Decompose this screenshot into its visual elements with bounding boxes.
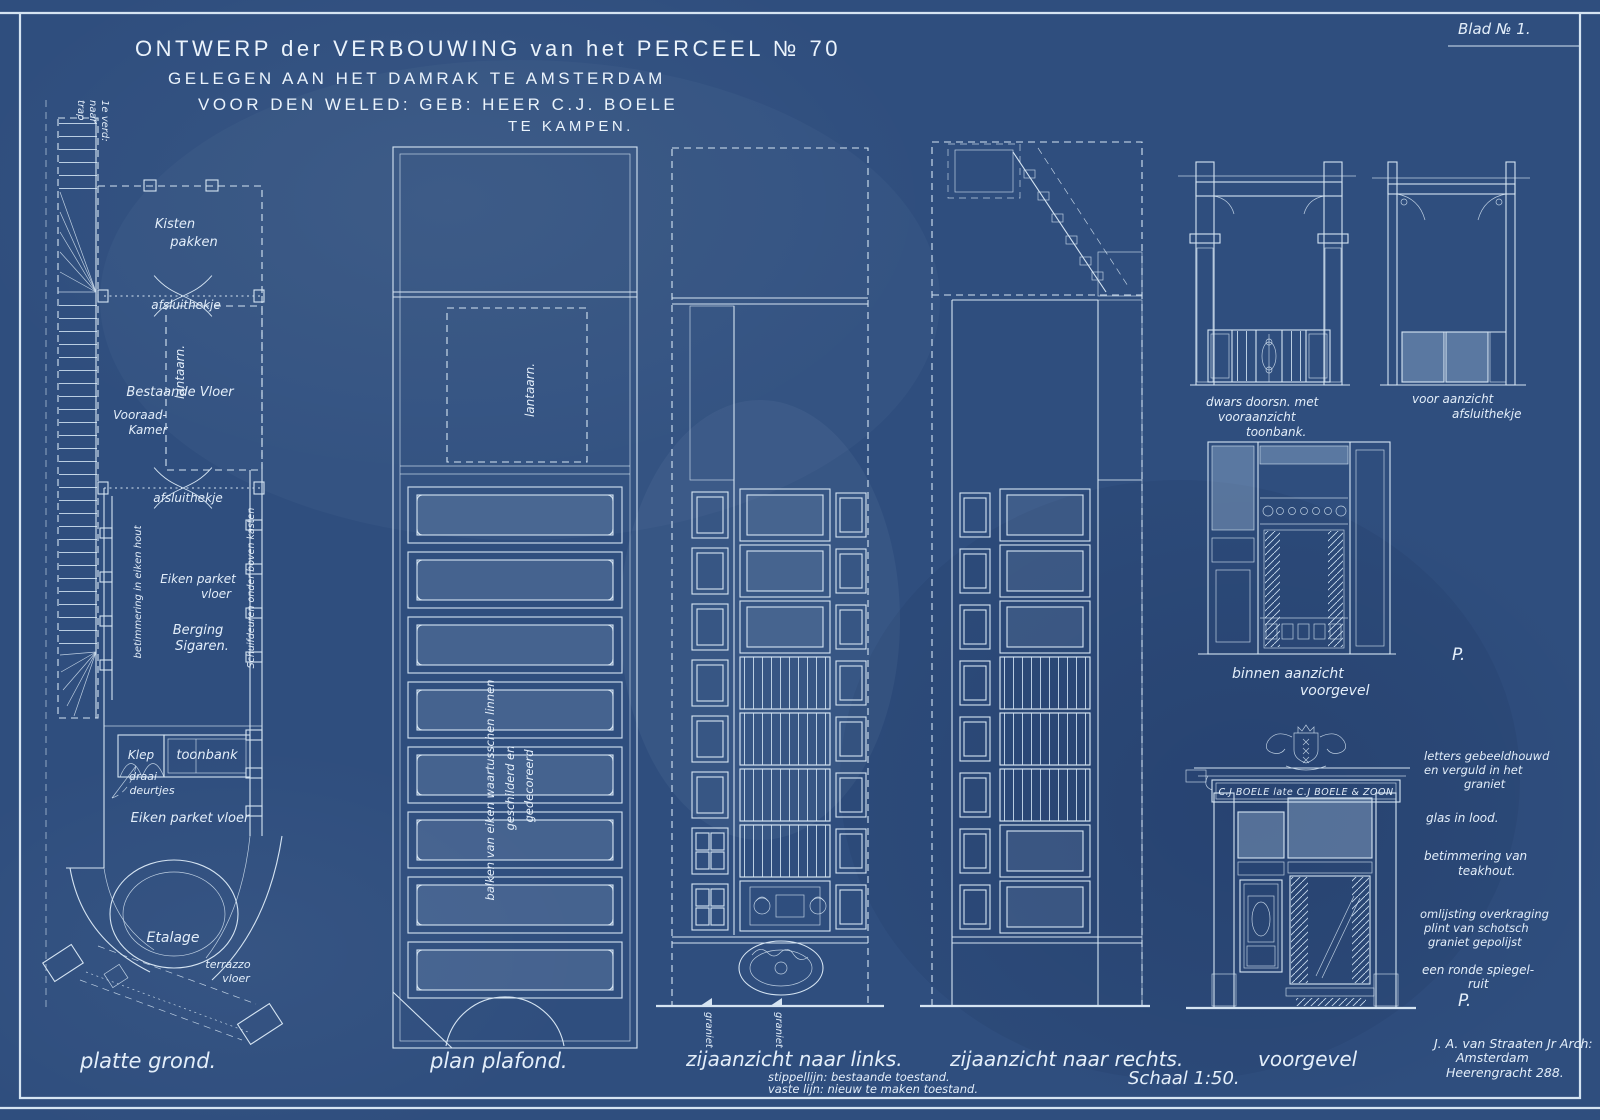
caption-binnen-2: voorgevel — [1300, 683, 1370, 699]
label-graniet-1: graniet — [703, 1012, 714, 1049]
note-omlijsting-2: plint van schotsch — [1423, 921, 1529, 935]
shop-sign: C.J BOELE late C.J BOELE & ZOON — [1218, 787, 1393, 798]
label-afsluithekje-2: afsluithekje — [153, 491, 222, 505]
label-afsluithekje-1: afsluithekje — [151, 298, 220, 312]
label-trap-2: naar — [87, 100, 98, 124]
label-betimmering: betimmering in eiken hout — [133, 524, 144, 658]
label-toonbank: toonbank — [176, 748, 238, 763]
label-etalage: Etalage — [147, 930, 200, 946]
ornate-plaque — [740, 881, 830, 931]
caption-toonbank-1: dwars doorsn. met — [1206, 395, 1320, 409]
architect-city: Amsterdam — [1455, 1050, 1529, 1065]
architect-address: Heerengracht 288. — [1446, 1065, 1564, 1080]
label-balken-2: geschilderd en — [503, 746, 517, 831]
label-draai-1: draai- — [129, 770, 161, 783]
caption-toonbank-3: toonbank. — [1246, 425, 1306, 439]
caption-zijaanzicht-links: zijaanzicht naar links. — [685, 1047, 903, 1071]
note-letters-3: graniet — [1464, 777, 1506, 791]
label-trap-3: 1e verd: — [99, 100, 110, 142]
carved-cartouche — [739, 941, 823, 995]
label-voorraad-1: Vooraad- — [113, 408, 167, 422]
label-p2: P. — [1458, 991, 1471, 1011]
entry-block — [43, 945, 83, 982]
title-line4: TE KAMPEN. — [508, 118, 634, 135]
title-line1: ONTWERP der VERBOUWING van het PERCEEL №… — [135, 36, 841, 61]
label-draai-2: deurtjes — [129, 784, 174, 797]
label-parket-1a: Eiken parket — [160, 572, 237, 586]
caption-binnen-1: binnen aanzicht — [1232, 666, 1344, 682]
blueprint-sheet: ONTWERP der VERBOUWING van het PERCEEL №… — [0, 0, 1600, 1120]
note-omlijsting-3: graniet gepolijst — [1428, 935, 1522, 949]
architect-name: J. A. van Straaten Jr Arch: — [1431, 1036, 1593, 1051]
label-lantaarn-plafond: lantaarn. — [523, 363, 537, 417]
note-spiegel-2: ruit — [1468, 977, 1490, 991]
label-bestaande-vloer: Bestaande Vloer — [126, 385, 235, 400]
label-trap-1: trap — [75, 100, 86, 121]
label-kisten-1: Kisten — [155, 217, 195, 232]
note-letters-2: en verguld in het — [1424, 763, 1523, 777]
blueprint-drawing: ONTWERP der VERBOUWING van het PERCEEL №… — [0, 0, 1600, 1120]
note-glas: glas in lood. — [1426, 811, 1499, 825]
entry-post — [104, 964, 128, 987]
caption-hekje-2: afsluithekje — [1452, 407, 1521, 421]
entry-block — [238, 1004, 283, 1045]
label-schaal: Schaal 1:50. — [1128, 1068, 1240, 1089]
label-voorraad-2: Kamer — [129, 423, 169, 437]
counter-section: dwars doorsn. met vooraanzicht toonbank. — [1178, 162, 1356, 439]
note-spiegel-1: een ronde spiegel- — [1422, 963, 1534, 977]
label-graniet-2: graniet — [773, 1012, 784, 1049]
label-parket-1b: vloer — [201, 587, 232, 601]
label-p1: P. — [1452, 645, 1465, 665]
title-line2: GELEGEN AAN HET DAMRAK TE AMSTERDAM — [168, 69, 666, 88]
legend-note-2: vaste lijn: nieuw te maken toestand. — [768, 1082, 978, 1096]
title-line3: VOOR DEN WELED: GEB: HEER C.J. BOELE — [198, 95, 678, 114]
label-berging-1: Berging — [173, 623, 224, 638]
label-berging-2: Sigaren. — [175, 639, 229, 654]
note-omlijsting-1: omlijsting overkraging — [1420, 907, 1549, 921]
label-kisten-2: pakken — [169, 235, 218, 250]
note-letters-1: letters gebeeldhouwd — [1424, 749, 1550, 763]
label-balken-3: gedecoreerd — [522, 749, 536, 823]
note-betimmering-1: betimmering van — [1424, 849, 1527, 863]
caption-voorgevel: voorgevel — [1258, 1047, 1358, 1071]
label-terrazzo-1: terrazzo — [205, 958, 250, 971]
label-parket-2: Eiken parket vloer — [131, 811, 251, 826]
gate-front: voor aanzicht afsluithekje — [1372, 162, 1530, 421]
caption-platte-grond: platte grond. — [79, 1049, 216, 1073]
label-balken-1: balken van eiken waartusschen linnen — [483, 680, 497, 901]
note-betimmering-2: teakhout. — [1458, 864, 1515, 878]
sheet-number: Blad № 1. — [1458, 20, 1531, 38]
label-schuifdeuren: Schuifdeuren onder boven kasten — [246, 508, 257, 669]
label-terrazzo-2: vloer — [222, 972, 251, 985]
caption-toonbank-2: vooraanzicht — [1218, 410, 1297, 424]
caption-plan-plafond: plan plafond. — [429, 1049, 568, 1073]
architect-block: J. A. van Straaten Jr Arch: Amsterdam He… — [1431, 1036, 1593, 1080]
caption-hekje-1: voor aanzicht — [1412, 392, 1495, 406]
label-klep: Klep — [128, 748, 155, 762]
